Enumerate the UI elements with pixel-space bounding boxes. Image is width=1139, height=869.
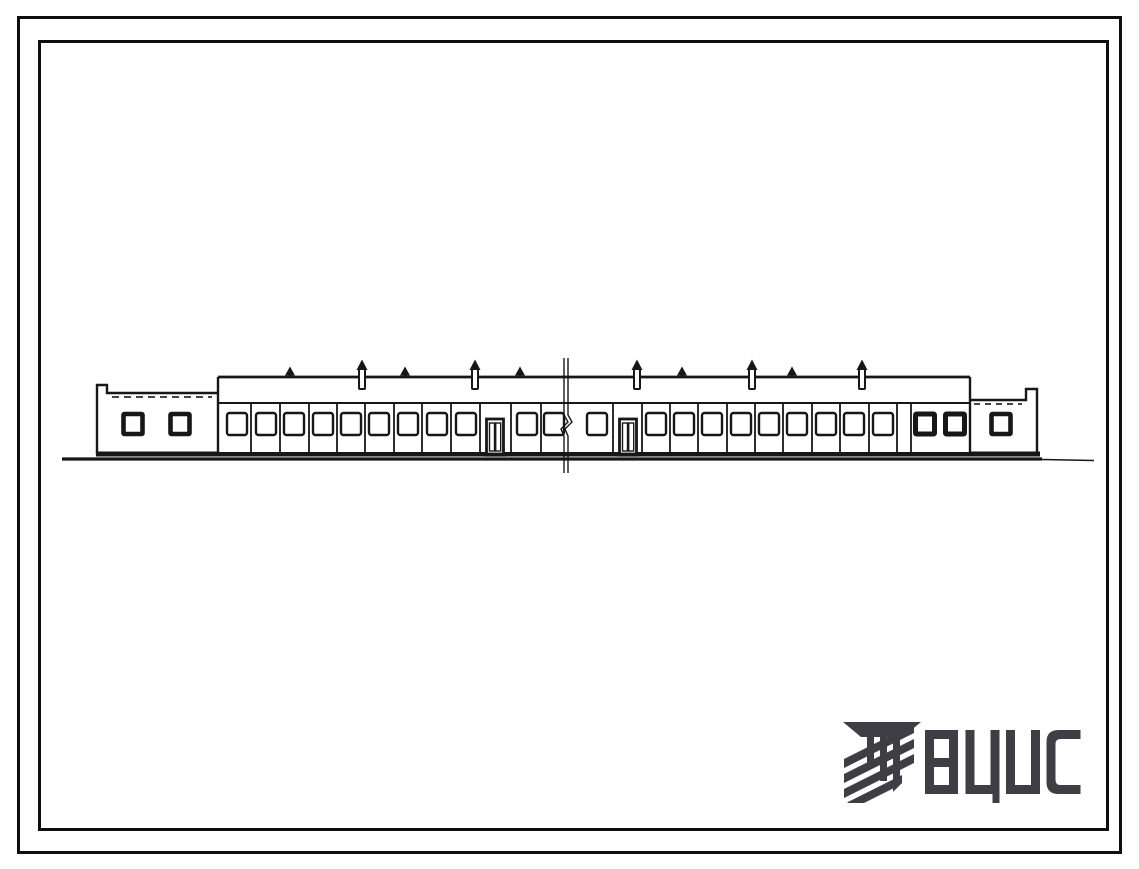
roof-vent-tall — [857, 360, 868, 390]
vent-stem — [472, 369, 478, 389]
window — [313, 413, 333, 435]
vent-stem — [359, 369, 365, 389]
logo-letter — [1047, 730, 1081, 794]
door-leaf — [623, 423, 628, 451]
roof-vent-tall — [632, 360, 643, 390]
dark-window — [916, 414, 935, 434]
window — [674, 413, 694, 435]
roof-vent-tall — [470, 360, 481, 390]
window — [341, 413, 361, 435]
vcis-logo-text — [925, 724, 1090, 808]
window — [702, 413, 722, 435]
roof-vent-tall — [357, 360, 368, 390]
window — [284, 413, 304, 435]
window — [544, 413, 564, 435]
door-leaf — [629, 423, 634, 451]
window — [369, 413, 389, 435]
vent-stem — [749, 369, 755, 389]
logo-letter — [966, 730, 1000, 803]
window — [256, 413, 276, 435]
window — [873, 413, 893, 435]
window — [759, 413, 779, 435]
roof-vent-tall — [747, 360, 758, 390]
window — [816, 413, 836, 435]
window — [456, 413, 476, 435]
vcis-logo-text-value: ВЦИС — [842, 716, 843, 717]
window — [587, 413, 607, 435]
dark-window — [946, 414, 965, 434]
door-leaf — [490, 423, 495, 451]
vent-stem — [634, 369, 640, 389]
logo-letter — [925, 730, 958, 794]
window — [787, 413, 807, 435]
vcis-logo: ВЦИС — [842, 716, 1092, 808]
wing-window — [171, 414, 190, 434]
drawing-sheet: ВЦИС — [0, 0, 1139, 869]
logo-letter — [1006, 730, 1040, 794]
window — [398, 413, 418, 435]
left-wing — [97, 385, 218, 455]
door-leaf — [496, 423, 501, 451]
wing-window — [124, 414, 143, 434]
window — [731, 413, 751, 435]
window — [427, 413, 447, 435]
vent-stem — [859, 369, 865, 389]
window — [844, 413, 864, 435]
right-wing — [970, 389, 1037, 455]
window — [517, 413, 537, 435]
wing-window — [992, 414, 1011, 434]
window — [227, 413, 247, 435]
window-row — [227, 413, 893, 435]
window — [646, 413, 666, 435]
vcis-logo-icon — [842, 719, 922, 803]
